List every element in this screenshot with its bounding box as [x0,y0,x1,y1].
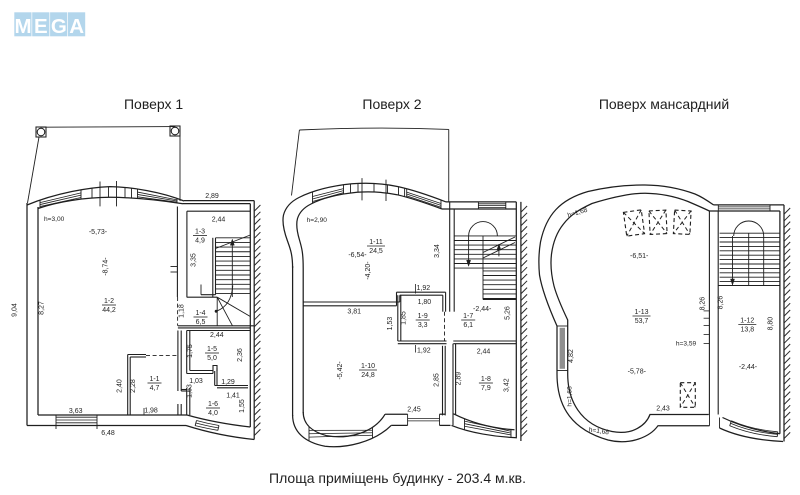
svg-text:4,7: 4,7 [150,385,160,392]
svg-text:2,89: 2,89 [455,372,462,386]
svg-text:8,26: 8,26 [718,296,725,310]
svg-text:Площа приміщень будинку - 203.: Площа приміщень будинку - 203.4 м.кв. [269,470,526,486]
svg-text:53,7: 53,7 [635,318,649,325]
svg-text:h=1,68: h=1,68 [566,386,573,407]
svg-text:-2,44-: -2,44- [473,306,492,313]
svg-text:1,98: 1,98 [144,408,158,415]
svg-text:5,0: 5,0 [207,355,217,362]
svg-text:3,63: 3,63 [69,408,83,415]
svg-text:2,44: 2,44 [212,217,226,224]
svg-text:1-7: 1-7 [463,313,473,320]
svg-text:1-10: 1-10 [361,363,375,370]
svg-text:-6,54-: -6,54- [348,252,367,259]
svg-text:2,89: 2,89 [205,193,219,200]
svg-text:1,92: 1,92 [417,348,431,355]
svg-text:h=2,90: h=2,90 [307,217,328,224]
svg-text:1-1: 1-1 [149,376,159,383]
svg-text:1,75: 1,75 [187,344,194,358]
svg-text:E: E [34,15,48,38]
svg-text:2,85: 2,85 [434,373,441,387]
svg-text:2,28: 2,28 [130,379,137,393]
svg-text:3,35: 3,35 [191,253,198,267]
svg-text:6,5: 6,5 [196,319,206,326]
svg-text:4,82: 4,82 [568,349,575,363]
svg-text:-4,20-: -4,20- [365,261,372,280]
svg-text:1,53: 1,53 [387,317,394,331]
svg-text:24,8: 24,8 [361,372,375,379]
svg-text:9,04: 9,04 [12,303,19,317]
svg-text:1-8: 1-8 [481,376,491,383]
svg-text:6,1: 6,1 [463,322,473,329]
svg-text:1,18: 1,18 [179,304,186,318]
svg-text:2,36: 2,36 [237,348,244,362]
svg-text:2,44: 2,44 [477,349,491,356]
svg-text:h=3,59: h=3,59 [676,341,697,348]
svg-text:1-12: 1-12 [740,318,754,325]
svg-text:1-5: 1-5 [207,346,217,353]
svg-text:3,3: 3,3 [418,322,428,329]
svg-text:6,48: 6,48 [101,430,115,437]
svg-text:3,42: 3,42 [504,378,511,392]
svg-text:2,40: 2,40 [117,379,124,393]
svg-text:8,26: 8,26 [699,297,706,311]
svg-text:3,81: 3,81 [347,309,361,316]
svg-text:8,80: 8,80 [768,317,775,331]
svg-text:4,9: 4,9 [195,238,205,245]
svg-text:Поверх 2: Поверх 2 [362,96,421,112]
svg-text:7,9: 7,9 [481,385,491,392]
svg-text:5,26: 5,26 [504,306,511,320]
svg-text:2,45: 2,45 [407,407,421,414]
svg-text:-6,51-: -6,51- [630,253,649,260]
svg-text:1-3: 1-3 [195,229,205,236]
svg-text:2,43: 2,43 [656,406,670,413]
svg-text:1-11: 1-11 [369,239,383,246]
svg-text:-2,44-: -2,44- [739,364,758,371]
svg-text:-8,74-: -8,74- [103,257,110,276]
svg-text:8,27: 8,27 [39,301,46,315]
svg-text:-5,78-: -5,78- [628,369,647,376]
svg-text:1,41: 1,41 [226,393,240,400]
svg-text:1,29: 1,29 [221,379,235,386]
svg-text:1-9: 1-9 [418,313,428,320]
svg-text:1,92: 1,92 [416,285,430,292]
svg-text:h=3,00: h=3,00 [44,216,65,223]
svg-text:1,63: 1,63 [187,384,194,398]
svg-text:A: A [69,15,84,38]
svg-text:-5,42-: -5,42- [337,361,344,380]
svg-text:1,85: 1,85 [401,311,408,325]
svg-text:3,34: 3,34 [434,244,441,258]
svg-text:Поверх 1: Поверх 1 [124,96,183,112]
svg-text:Поверх мансардний: Поверх мансардний [599,96,729,112]
svg-text:1-6: 1-6 [208,401,218,408]
svg-text:1-2: 1-2 [104,298,114,305]
svg-text:1,80: 1,80 [418,299,432,306]
svg-text:G: G [51,15,67,38]
svg-text:1,03: 1,03 [189,378,203,385]
svg-text:13,8: 13,8 [740,327,754,334]
svg-text:44,2: 44,2 [102,307,116,314]
svg-text:M: M [14,15,31,38]
svg-text:1,55: 1,55 [239,399,246,413]
svg-text:4,0: 4,0 [208,410,218,417]
svg-text:-5,73-: -5,73- [89,229,108,236]
svg-text:2,44: 2,44 [210,332,224,339]
svg-text:1-13: 1-13 [634,309,648,316]
svg-text:24,5: 24,5 [369,248,383,255]
svg-text:1-4: 1-4 [195,310,205,317]
